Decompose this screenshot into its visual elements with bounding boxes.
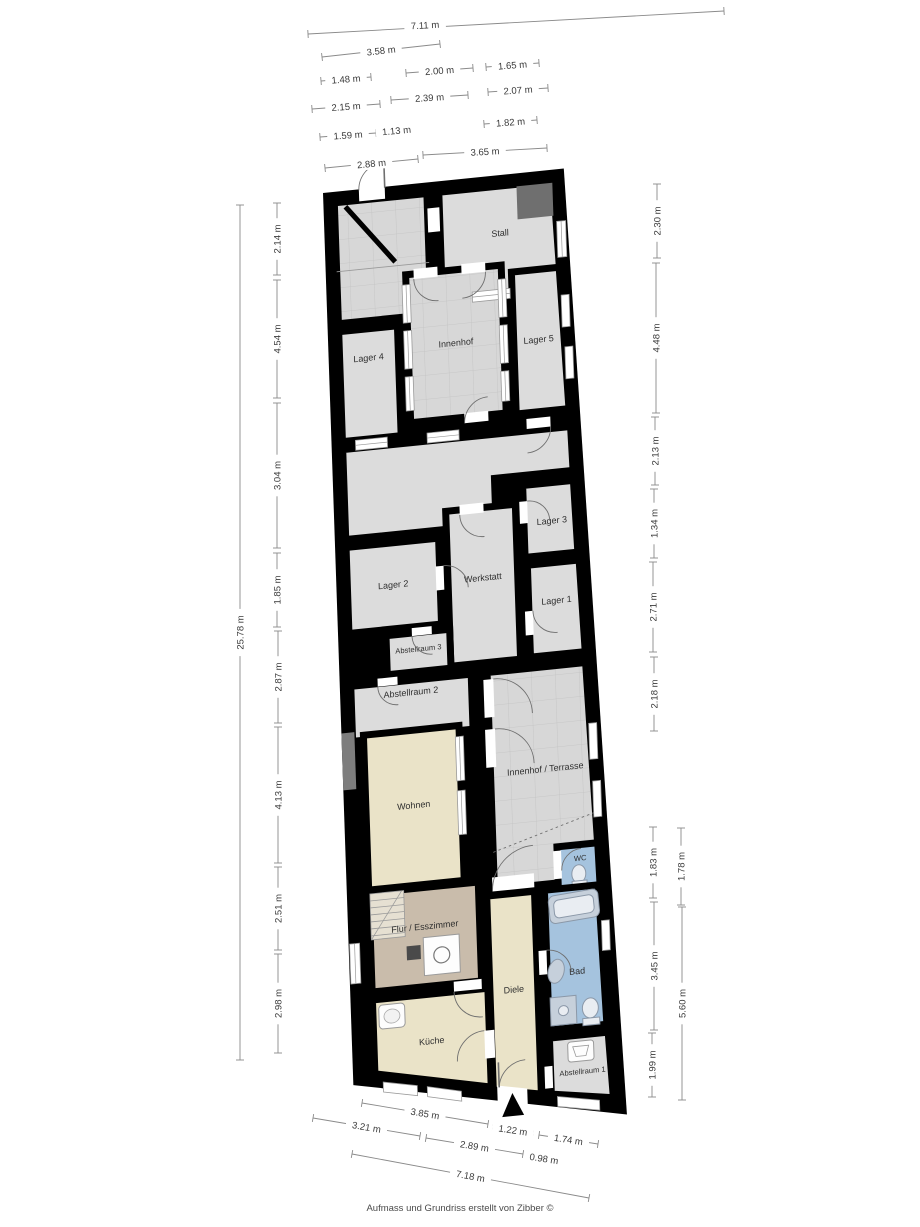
dimension-right-1.99m: 1.99 m: [646, 1033, 659, 1097]
svg-text:2.39 m: 2.39 m: [415, 92, 445, 105]
svg-text:1.13 m: 1.13 m: [382, 125, 412, 139]
svg-text:3.04 m: 3.04 m: [273, 461, 284, 490]
dimension-right-2.13m: 2.13 m: [649, 417, 662, 485]
floorplan-canvas: Stall Lager 4 Innenhof Lager 5 Lager 3 W…: [0, 0, 920, 1227]
dimension-top-2.07m: 2.07 m: [488, 83, 549, 98]
dimension-right-1.34m: 1.34 m: [648, 489, 661, 558]
dimension-top-1.13m: 1.13 m: [375, 123, 418, 139]
room-flur-esszimmer: Flur / Esszimmer: [369, 882, 482, 992]
stove-icon: [423, 934, 460, 976]
dimension-right-2.71m: 2.71 m: [647, 562, 660, 652]
wall-block: [341, 732, 356, 790]
svg-text:1.82 m: 1.82 m: [496, 116, 526, 129]
svg-text:2.00 m: 2.00 m: [425, 65, 455, 78]
svg-text:7.18 m: 7.18 m: [455, 1169, 486, 1185]
dimension-bottom-1.22m: 1.22 m: [491, 1121, 534, 1140]
dimension-right-3.45m: 3.45 m: [648, 902, 661, 1030]
kitchen-sink-icon: [379, 1003, 406, 1030]
dimension-right-2.18m: 2.18 m: [648, 657, 661, 731]
svg-text:2.15 m: 2.15 m: [331, 101, 361, 114]
dimension-right-outer-5.60m: 5.60 m: [676, 907, 689, 1100]
dimension-top-1.65m: 1.65 m: [486, 57, 540, 73]
svg-text:4.54 m: 4.54 m: [273, 324, 284, 353]
dimension-top-2.00m: 2.00 m: [406, 63, 474, 79]
svg-text:2.13 m: 2.13 m: [651, 436, 662, 465]
svg-text:1.78 m: 1.78 m: [677, 852, 688, 881]
svg-text:4.48 m: 4.48 m: [652, 323, 663, 352]
dimension-left-2.87m: 2.87 m: [272, 631, 285, 723]
svg-text:3.65 m: 3.65 m: [470, 146, 500, 159]
room-innenhof: Innenhof: [406, 265, 507, 423]
dimension-right-4.48m: 4.48 m: [650, 263, 663, 413]
svg-text:5.60 m: 5.60 m: [678, 989, 689, 1018]
svg-text:2.14 m: 2.14 m: [273, 224, 284, 253]
dimension-bottom-3.21m: 3.21 m: [312, 1114, 420, 1140]
basin-icon: [568, 1040, 595, 1063]
svg-text:2.88 m: 2.88 m: [357, 158, 387, 172]
room-label-diele: Diele: [503, 984, 524, 996]
room-label-stall: Stall: [491, 227, 509, 239]
dimension-top-3.58m: 3.58 m: [322, 40, 441, 61]
room-werkstatt: Werkstatt: [446, 504, 521, 666]
dimension-left-3.04m: 3.04 m: [271, 403, 284, 548]
dimension-right-2.30m: 2.30 m: [651, 184, 664, 258]
svg-text:1.99 m: 1.99 m: [648, 1050, 659, 1079]
svg-text:4.13 m: 4.13 m: [274, 780, 285, 809]
svg-text:2.98 m: 2.98 m: [274, 989, 285, 1018]
dimension-top-2.15m: 2.15 m: [312, 99, 381, 115]
dimension-right-1.83m: 1.83 m: [647, 827, 660, 898]
svg-text:2.89 m: 2.89 m: [459, 1139, 490, 1155]
room-bad: Bad: [543, 884, 607, 1030]
svg-text:2.51 m: 2.51 m: [274, 894, 285, 923]
dimension-left-1.85m: 1.85 m: [271, 553, 284, 627]
footer-credit: Aufmass und Grundriss erstellt von Zibbe…: [0, 1203, 920, 1214]
svg-text:7.11 m: 7.11 m: [411, 20, 440, 33]
dimension-bottom-0.98m: 0.98 m: [522, 1149, 565, 1168]
dimension-top-1.82m: 1.82 m: [484, 114, 538, 130]
dimension-left-4.54m: 4.54 m: [271, 280, 284, 398]
room-label-wc: WC: [574, 853, 587, 863]
dimension-top-2.39m: 2.39 m: [391, 90, 469, 105]
dimension-left-2.98m: 2.98 m: [272, 954, 285, 1053]
dimension-top-7.11m: 7.11 m: [308, 7, 724, 38]
svg-text:1.48 m: 1.48 m: [331, 73, 361, 86]
room-lager-1: Lager 1: [527, 560, 585, 657]
svg-text:2.71 m: 2.71 m: [649, 592, 660, 621]
dimension-left-25.78m: 25.78 m: [234, 205, 247, 1060]
dark-block: [516, 183, 553, 220]
room-lager-3: Lager 3: [523, 480, 578, 557]
svg-text:2.30 m: 2.30 m: [653, 206, 664, 235]
dimension-left-2.51m: 2.51 m: [272, 867, 285, 950]
dimension-bottom-1.74m: 1.74 m: [538, 1130, 598, 1149]
dimension-left-4.13m: 4.13 m: [272, 727, 285, 863]
washing-machine-icon: [550, 995, 577, 1026]
svg-text:1.83 m: 1.83 m: [649, 848, 660, 877]
dimension-right-outer-1.78m: 1.78 m: [675, 828, 688, 905]
room-lager-5: Lager 5: [511, 267, 569, 414]
svg-text:1.34 m: 1.34 m: [650, 509, 661, 538]
svg-text:25.78 m: 25.78 m: [236, 615, 247, 649]
room-lager-4: Lager 4: [339, 326, 401, 442]
svg-text:3.58 m: 3.58 m: [366, 44, 396, 58]
dimension-left-2.14m: 2.14 m: [271, 203, 284, 275]
svg-text:2.07 m: 2.07 m: [503, 85, 533, 98]
dimension-top-1.48m: 1.48 m: [321, 71, 372, 87]
svg-text:2.18 m: 2.18 m: [650, 679, 661, 708]
chimney-block: [407, 945, 421, 960]
room-diele: Diele: [487, 891, 542, 1099]
room-abstellraum-3: Abstellraum 3: [386, 629, 451, 674]
svg-text:1.59 m: 1.59 m: [333, 129, 363, 142]
toilet-tank-icon: [583, 1017, 600, 1026]
dimension-bottom-2.89m: 2.89 m: [425, 1134, 523, 1158]
svg-text:2.87 m: 2.87 m: [274, 662, 285, 691]
dimension-top-3.65m: 3.65 m: [423, 144, 547, 159]
building: Stall Lager 4 Innenhof Lager 5 Lager 3 W…: [322, 140, 627, 1142]
dimension-top-1.59m: 1.59 m: [320, 128, 377, 143]
svg-text:3.21 m: 3.21 m: [351, 1120, 382, 1136]
svg-text:1.85 m: 1.85 m: [273, 575, 284, 604]
floorplan-page: Stall Lager 4 Innenhof Lager 5 Lager 3 W…: [0, 0, 920, 1227]
room-abstellraum-1: Abstellraum 1: [549, 1032, 613, 1104]
dimension-top-2.88m: 2.88 m: [325, 155, 419, 172]
svg-text:1.65 m: 1.65 m: [498, 59, 528, 72]
room-lager-2: Lager 2: [346, 538, 441, 633]
svg-text:3.85 m: 3.85 m: [410, 1107, 441, 1123]
svg-text:3.45 m: 3.45 m: [650, 951, 661, 980]
